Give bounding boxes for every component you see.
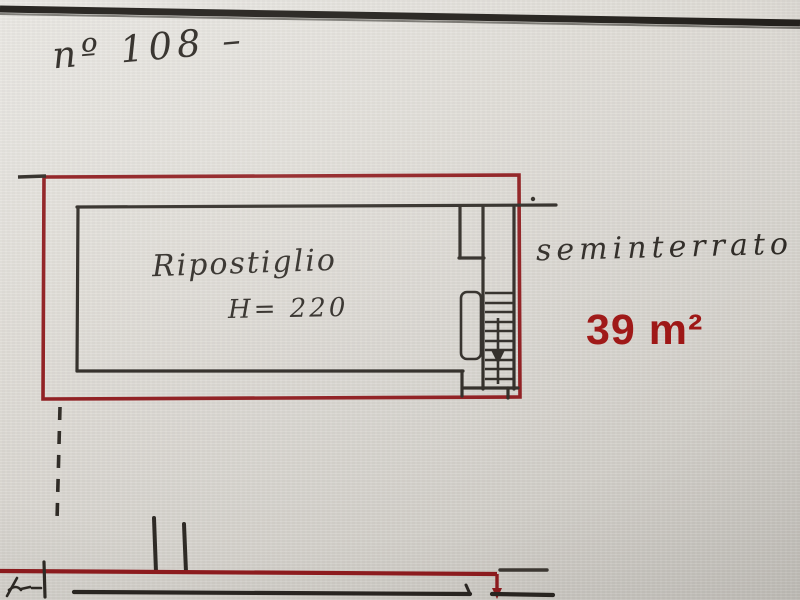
stair-direction-arrow <box>491 318 505 384</box>
stair-landing-box <box>461 292 481 359</box>
room-name-label: Ripostiglio <box>151 243 337 284</box>
staircase <box>461 292 513 384</box>
boundary-left-tick <box>18 176 46 177</box>
plan-linework <box>0 0 800 600</box>
room-height-label: H= 220 <box>228 293 349 325</box>
dashed-boundary-line <box>57 407 60 521</box>
lower-wall-stubs <box>154 518 186 572</box>
scribble-mark <box>7 562 45 597</box>
red-boundary-outline <box>43 175 520 399</box>
scanned-floor-plan: { "annotations": { "plan_number": "nº 10… <box>0 0 800 600</box>
area-label: 39 m² <box>586 306 703 355</box>
top-edge-line <box>0 9 800 28</box>
floor-level-label: seminterrato <box>536 227 794 269</box>
